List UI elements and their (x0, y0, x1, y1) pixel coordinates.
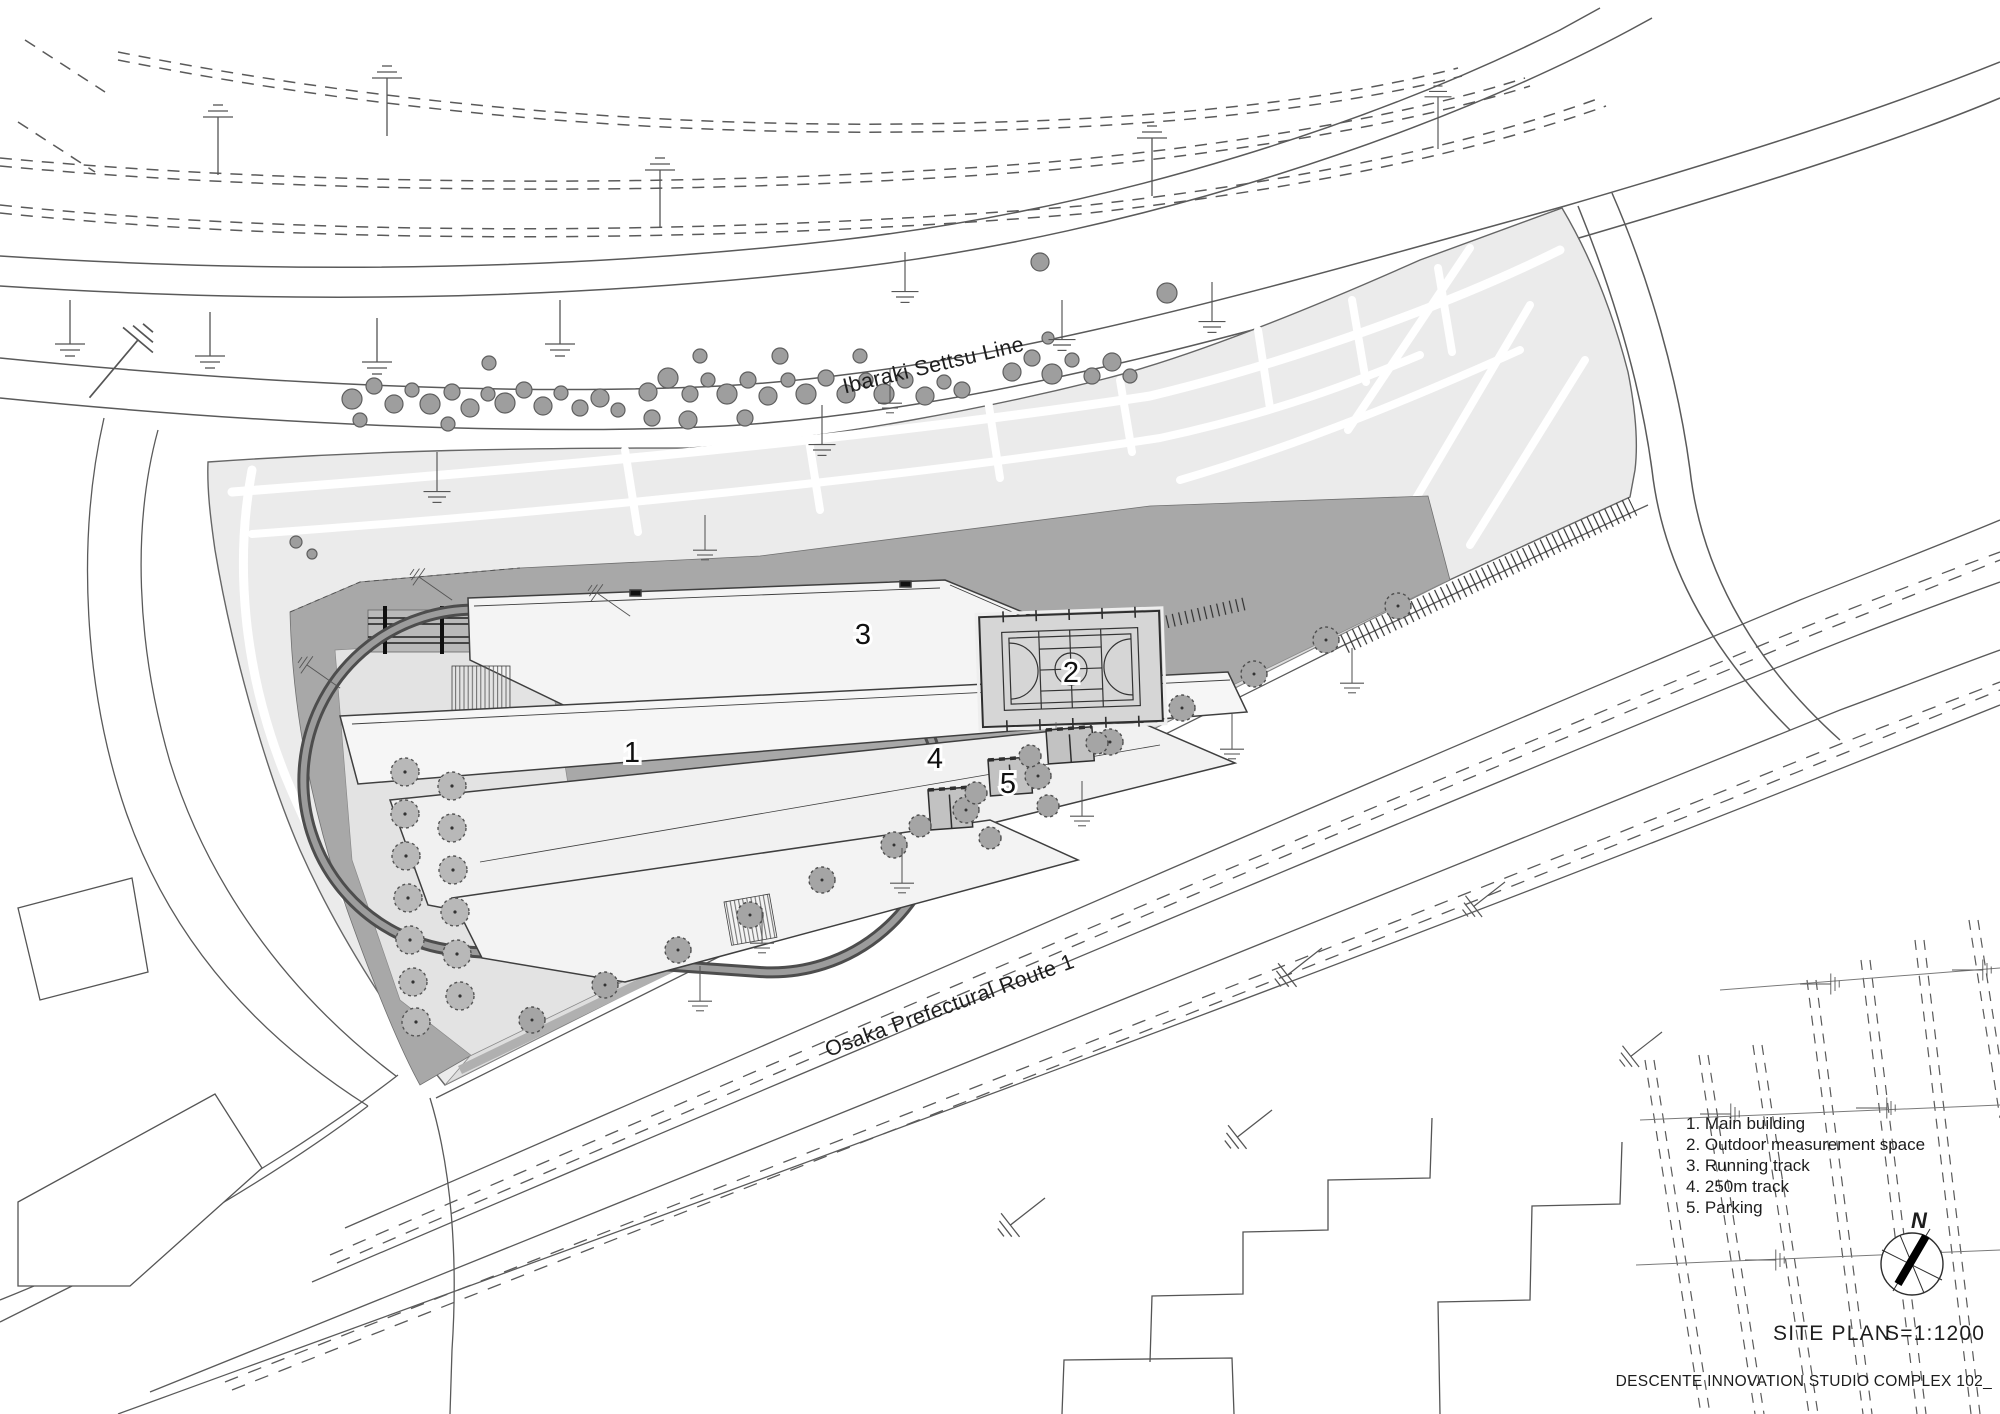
project-footer: DESCENTE INNOVATION STUDIO COMPLEX 102_ (1616, 1373, 1992, 1390)
south-road-label: Osaka Prefectural Route 1 (822, 949, 1078, 1062)
legend-item-4: 4. 250m track (1686, 1177, 1789, 1196)
neighbour-buildings (18, 878, 1622, 1414)
marker-5: 5 (1000, 768, 1016, 800)
legend-item-5: 5. Parking (1686, 1198, 1763, 1217)
compass: N (1881, 1208, 1943, 1295)
north-label: N (1911, 1208, 1928, 1233)
marker-1: 1 (624, 737, 640, 769)
legend-item-2: 2. Outdoor measurement space (1686, 1135, 1925, 1154)
marker-3: 3 (855, 619, 871, 651)
legend: 1. Main building 2. Outdoor measurement … (1686, 1114, 1925, 1217)
site-plan-drawing: Ibaraki Settsu Line Osaka Prefectural Ro… (0, 0, 2000, 1414)
title-block: SITE PLAN S=1:1200 DESCENTE INNOVATION S… (1616, 1322, 1992, 1390)
site-area (208, 208, 1637, 1085)
sheet-scale: S=1:1200 (1885, 1322, 1985, 1345)
legend-item-1: 1. Main building (1686, 1114, 1805, 1133)
marker-2: 2 (1063, 657, 1079, 689)
site-plan-sheet: Ibaraki Settsu Line Osaka Prefectural Ro… (0, 0, 2000, 1414)
marker-4: 4 (927, 743, 943, 775)
legend-item-3: 3. Running track (1686, 1156, 1810, 1175)
sheet-title: SITE PLAN (1773, 1322, 1891, 1345)
